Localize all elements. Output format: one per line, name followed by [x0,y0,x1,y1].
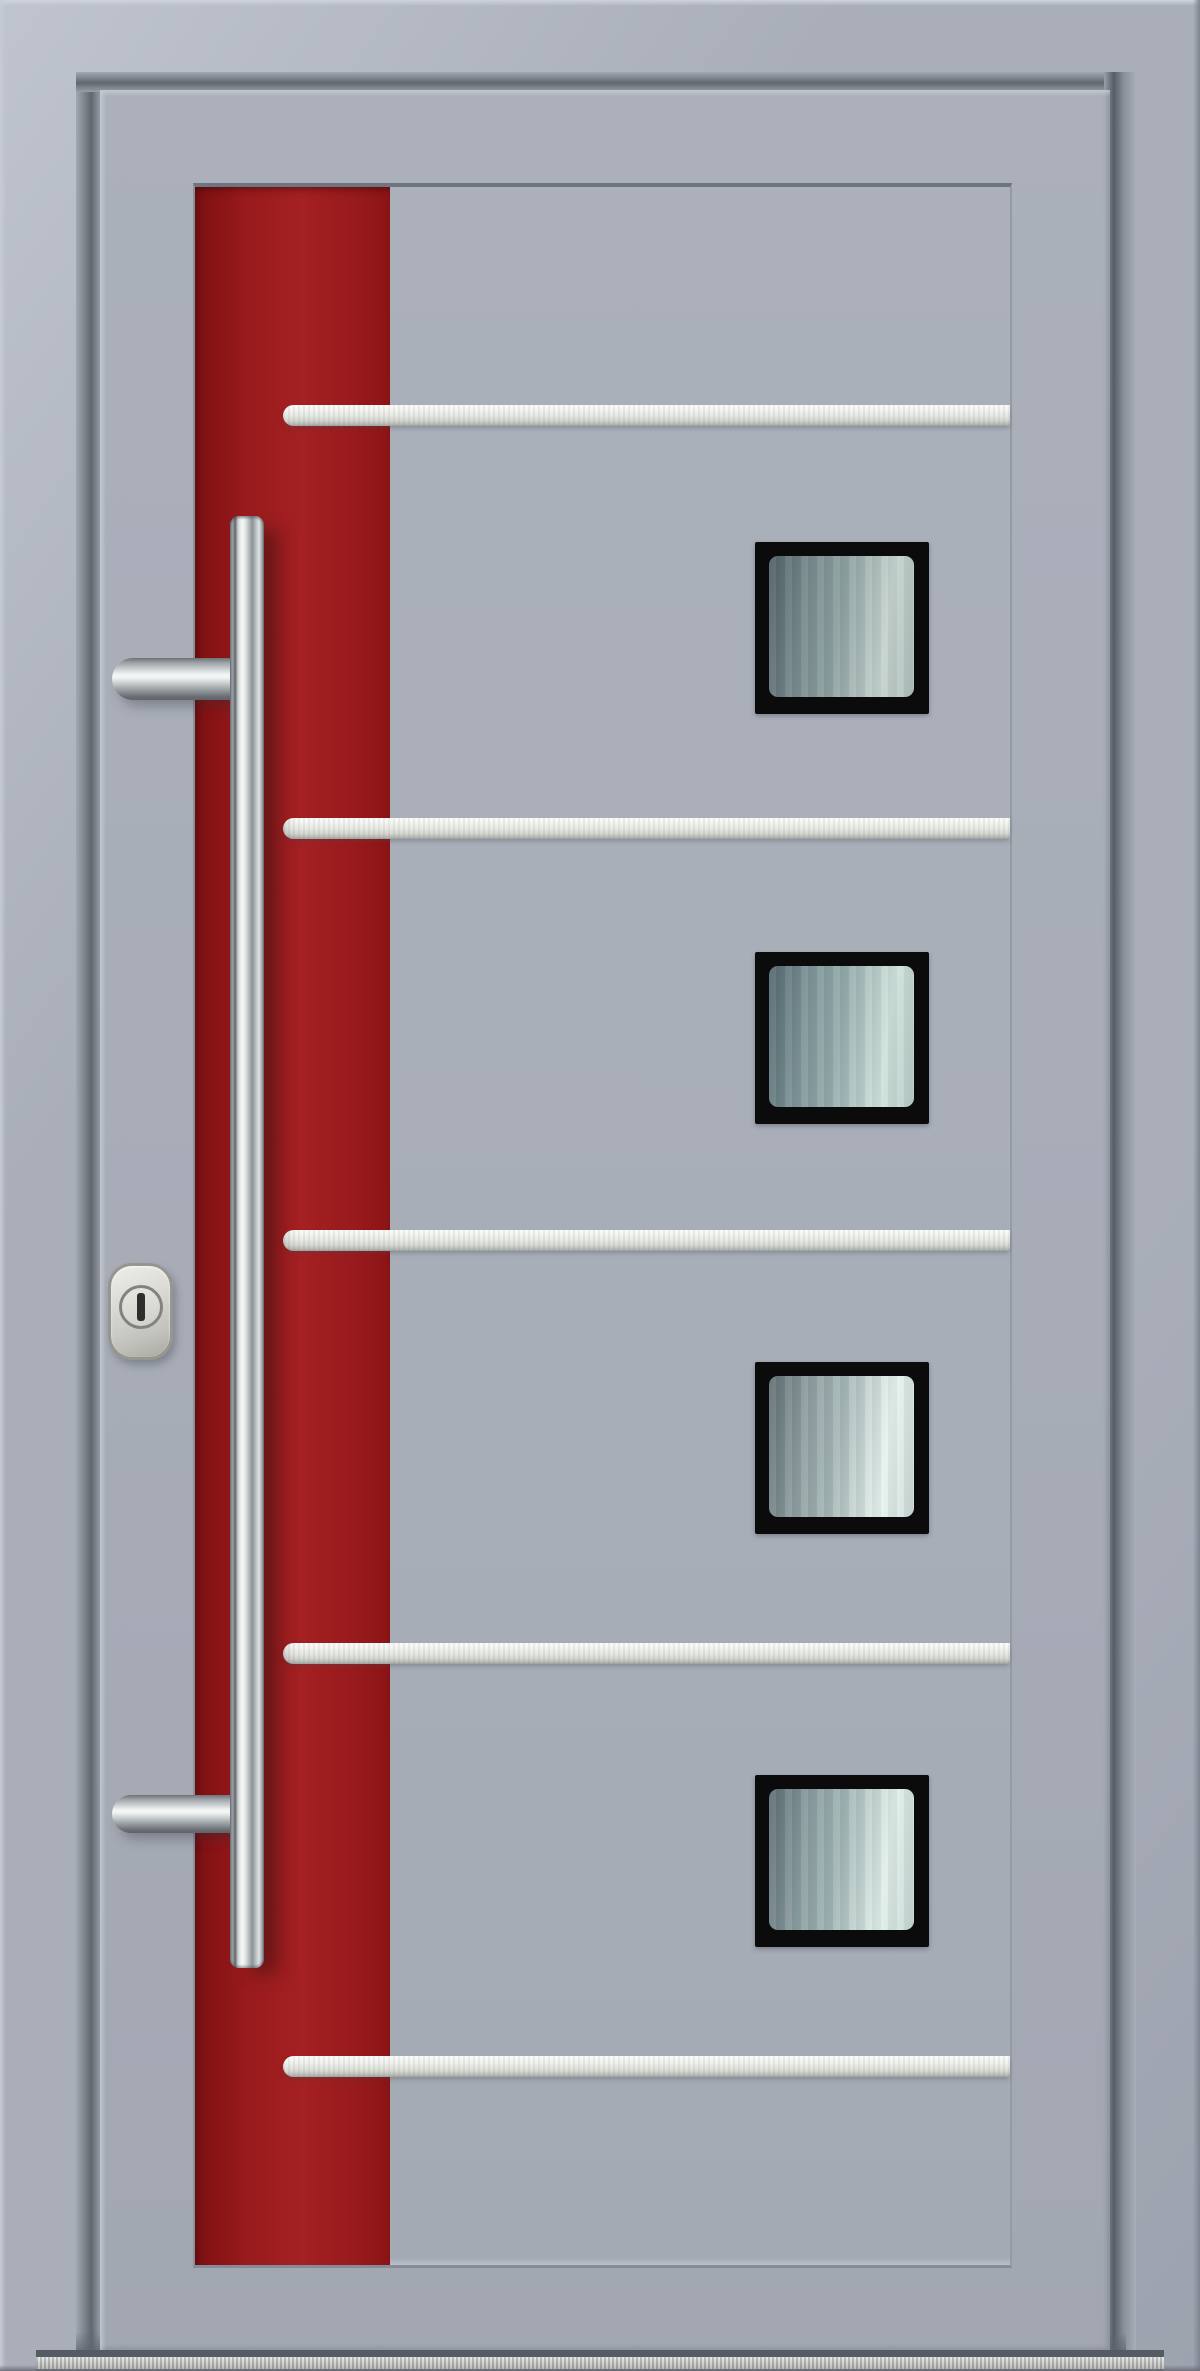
glass-pane [769,556,914,697]
steel-bar [283,818,1010,839]
threshold-sill [36,2350,1164,2371]
glass-pane [769,1376,914,1517]
glass-pane [769,1789,914,1930]
frame-edge-right-bevel [1193,0,1200,2371]
steel-bar [283,1230,1010,1251]
glazing-window [755,542,929,714]
handle-mount-top [112,658,242,700]
glass-pane [769,966,914,1107]
lock-escutcheon [108,1263,173,1360]
pull-handle-bar [230,516,264,1968]
door-product-photo [0,0,1200,2371]
glazing-window [755,952,929,1124]
frame-edge-top-bevel [0,0,1200,6]
frame-edge-left-bevel [0,0,6,2371]
glazing-window [755,1775,929,1947]
lock-cylinder-ring [119,1285,163,1329]
door-leaf [100,90,1110,2350]
frame-leaf-gap-top [76,72,1126,92]
handle-mount-bottom [112,1795,242,1833]
red-accent-stripe [195,187,390,2265]
glazing-window [755,1362,929,1534]
keyhole-slot [137,1293,145,1321]
steel-bar [283,2056,1010,2077]
recessed-center-panel [193,183,1012,2268]
steel-bar [283,405,1010,426]
steel-bar [283,1643,1010,1664]
